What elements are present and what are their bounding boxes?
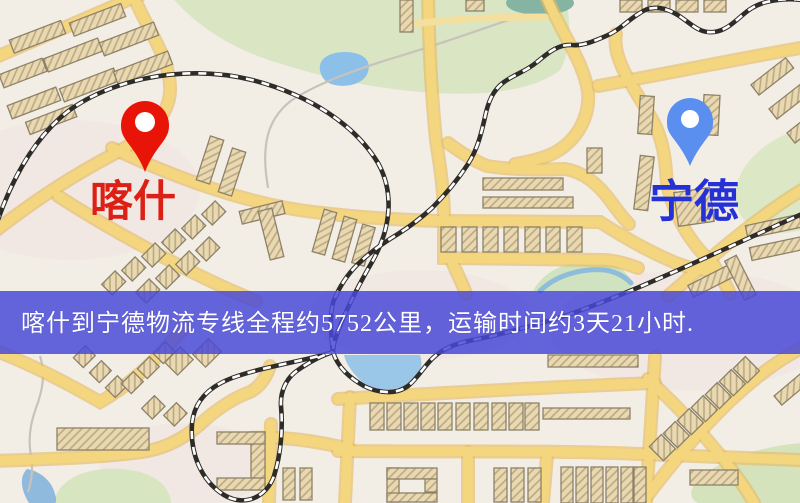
map-screenshot: 喀什 宁德 喀什到宁德物流专线全程约5752公里，运输时间约3天21小时. [0, 0, 800, 503]
destination-label: 宁德 [649, 177, 739, 227]
map-canvas[interactable]: 喀什 宁德 [0, 0, 800, 503]
route-info-banner: 喀什到宁德物流专线全程约5752公里，运输时间约3天21小时. [0, 291, 800, 354]
origin-label: 喀什 [90, 178, 176, 226]
route-info-text: 喀什到宁德物流专线全程约5752公里，运输时间约3天21小时. [21, 303, 694, 338]
